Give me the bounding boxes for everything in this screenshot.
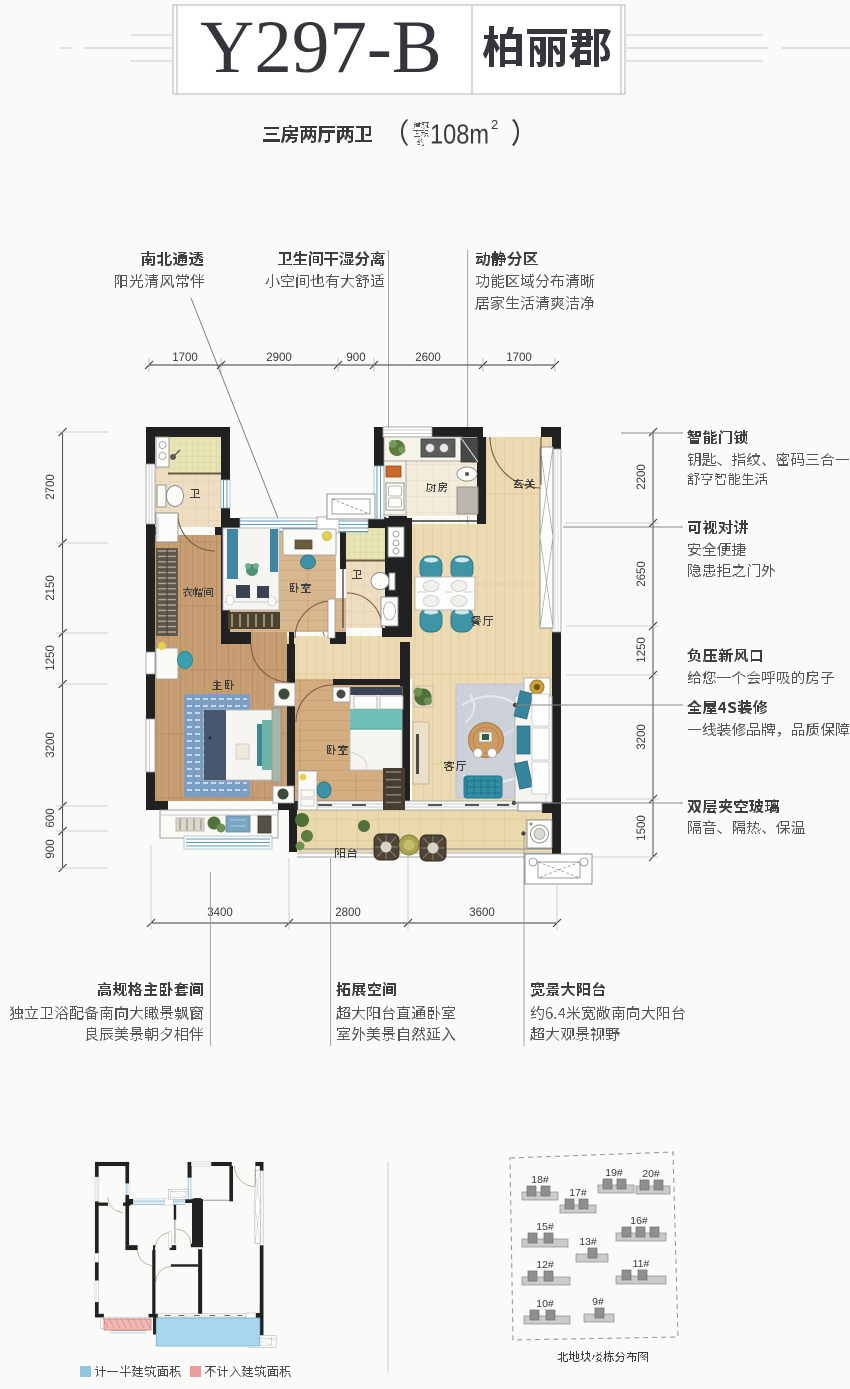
svg-text:1700: 1700 xyxy=(506,352,532,364)
svg-text:108m: 108m xyxy=(430,119,489,150)
svg-text:18#: 18# xyxy=(531,1174,549,1186)
svg-text:10#: 10# xyxy=(536,1298,554,1310)
svg-text:3200: 3200 xyxy=(636,724,648,750)
svg-text:11#: 11# xyxy=(633,1258,650,1270)
svg-text:2: 2 xyxy=(491,117,498,132)
svg-text:2650: 2650 xyxy=(636,561,648,587)
svg-text:600: 600 xyxy=(45,808,57,827)
svg-text:900: 900 xyxy=(45,839,57,858)
svg-text:9#: 9# xyxy=(592,1296,604,1308)
svg-text:20#: 20# xyxy=(642,1168,660,1180)
svg-text:15#: 15# xyxy=(536,1221,554,1233)
svg-text:3200: 3200 xyxy=(45,732,57,758)
svg-text:17#: 17# xyxy=(569,1187,587,1199)
svg-text:1250: 1250 xyxy=(45,645,57,671)
svg-text:1700: 1700 xyxy=(172,352,198,364)
svg-text:2600: 2600 xyxy=(415,352,441,364)
svg-text:12#: 12# xyxy=(536,1259,554,1271)
svg-text:2800: 2800 xyxy=(335,907,361,919)
svg-text:Y297-B: Y297-B xyxy=(200,6,442,89)
svg-text:16#: 16# xyxy=(630,1215,648,1227)
svg-text:2900: 2900 xyxy=(266,352,292,364)
svg-text:19#: 19# xyxy=(605,1167,623,1179)
svg-text:2150: 2150 xyxy=(45,575,57,601)
svg-text:900: 900 xyxy=(346,352,365,364)
svg-text:3600: 3600 xyxy=(469,907,495,919)
svg-text:2700: 2700 xyxy=(45,474,57,500)
svg-text:1500: 1500 xyxy=(636,815,648,841)
svg-text:3400: 3400 xyxy=(207,907,233,919)
svg-text:1250: 1250 xyxy=(636,637,648,663)
svg-text:2200: 2200 xyxy=(636,464,648,490)
svg-text:13#: 13# xyxy=(579,1236,597,1248)
